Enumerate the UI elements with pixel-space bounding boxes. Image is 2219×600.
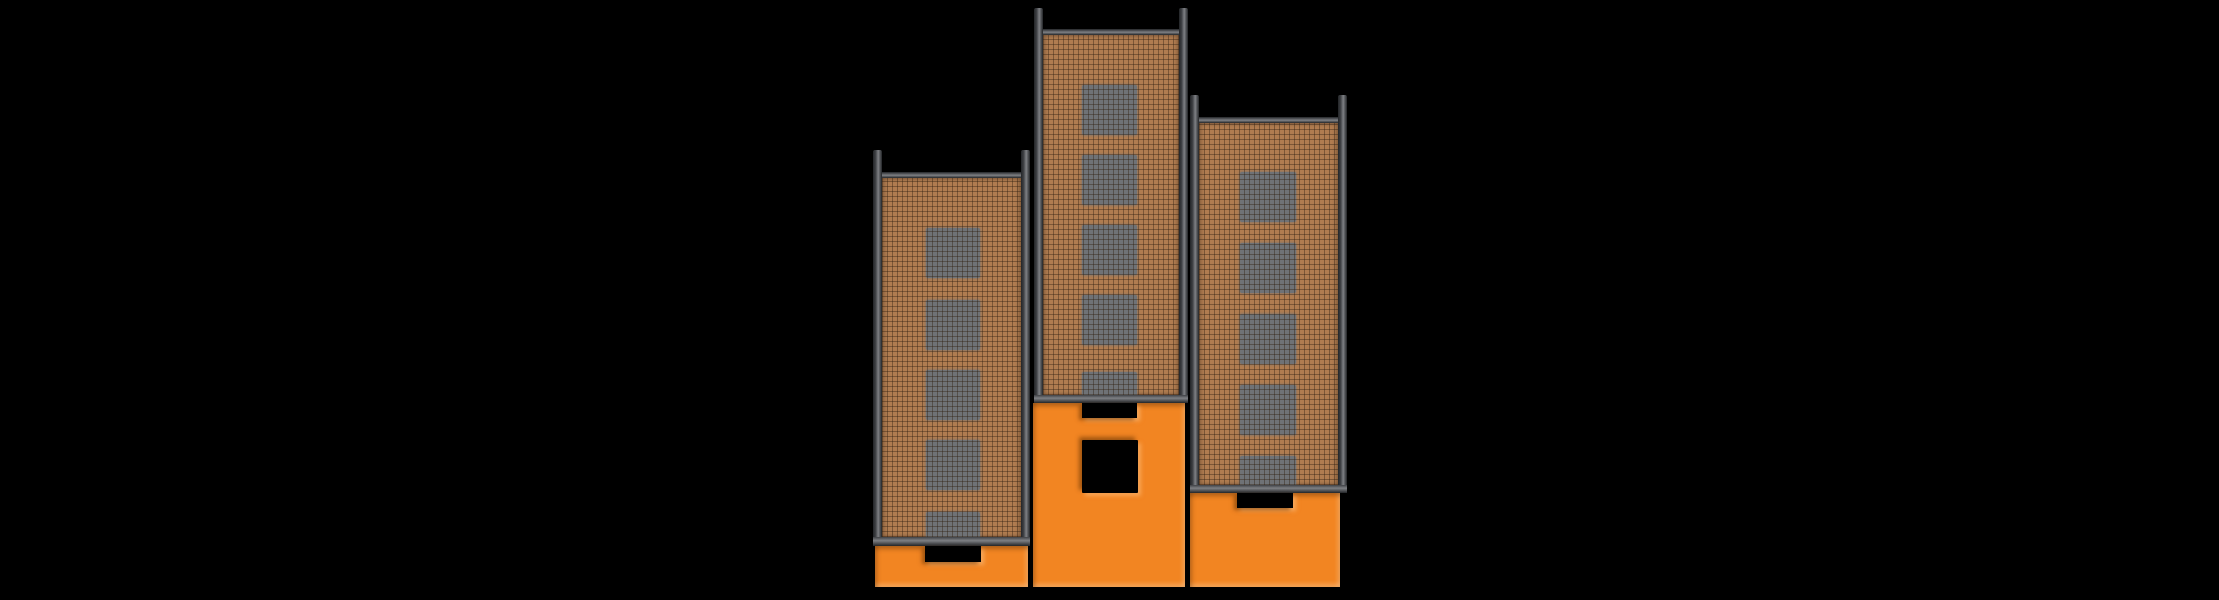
right-tower-roof-band	[1198, 117, 1339, 123]
left-tower-facade	[882, 178, 1021, 537]
left-tower-right-post	[1021, 150, 1030, 546]
left-tower-window-1	[926, 228, 980, 278]
left-tower-window-3	[926, 370, 980, 420]
middle-tower-window-1	[1082, 85, 1137, 135]
middle-tower-base-window	[1082, 440, 1138, 493]
middle-tower-bottom-band	[1034, 395, 1188, 403]
middle-tower-facade	[1043, 35, 1179, 395]
right-tower-bottom-band	[1190, 485, 1347, 493]
middle-tower-right-post	[1179, 8, 1188, 403]
right-tower-window-4	[1240, 385, 1296, 435]
scene	[0, 0, 2219, 600]
right-tower-base	[1190, 493, 1340, 587]
middle-tower-window-2	[1082, 155, 1137, 205]
right-tower-window-1	[1240, 172, 1296, 222]
left-tower-window-4	[926, 440, 980, 490]
middle-tower-left-post	[1034, 8, 1043, 403]
middle-tower-base	[1033, 403, 1185, 587]
left-tower-bottom-band	[873, 537, 1030, 546]
right-tower-window-3	[1240, 314, 1296, 364]
middle-tower-roof-band	[1042, 29, 1180, 35]
right-tower-facade	[1199, 123, 1338, 485]
right-tower-right-post	[1338, 95, 1347, 493]
left-tower-window-2	[926, 300, 980, 350]
right-tower-door-notch	[1237, 493, 1293, 508]
middle-tower-door-notch	[1082, 403, 1137, 418]
right-tower-left-post	[1190, 95, 1199, 493]
left-tower-window-5	[926, 512, 980, 537]
left-tower-door-notch	[925, 546, 981, 562]
left-tower-roof-band	[881, 172, 1022, 178]
middle-tower-window-3	[1082, 225, 1137, 275]
middle-tower-window-4	[1082, 295, 1137, 345]
right-tower-window-5	[1240, 456, 1296, 485]
left-tower-base	[875, 546, 1028, 587]
middle-tower-window-5	[1082, 372, 1137, 395]
left-tower-left-post	[873, 150, 882, 546]
right-tower-window-2	[1240, 243, 1296, 293]
